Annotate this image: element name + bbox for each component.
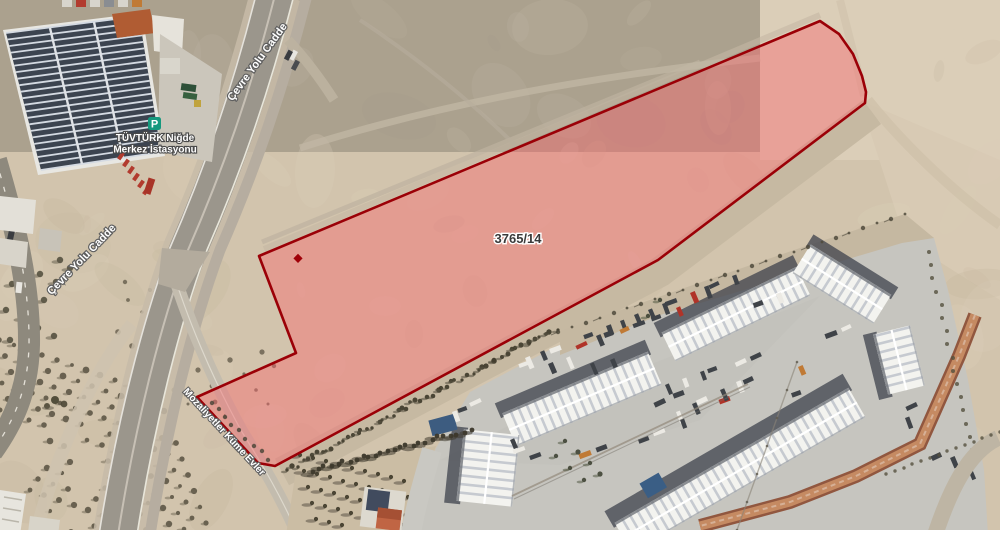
svg-text:Merkez İstasyonu: Merkez İstasyonu bbox=[113, 143, 196, 156]
svg-text:TÜVTÜRK Niğde: TÜVTÜRK Niğde bbox=[116, 131, 195, 144]
svg-text:3765/14: 3765/14 bbox=[495, 231, 543, 246]
svg-text:P: P bbox=[151, 119, 158, 131]
